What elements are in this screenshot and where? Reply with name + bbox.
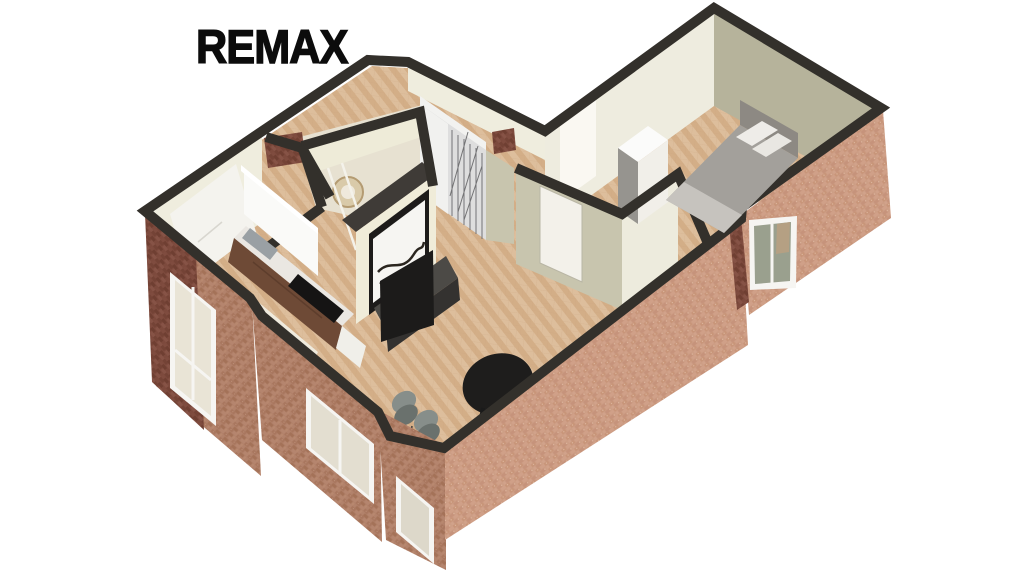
svg-text:REMAX: REMAX — [196, 20, 348, 73]
